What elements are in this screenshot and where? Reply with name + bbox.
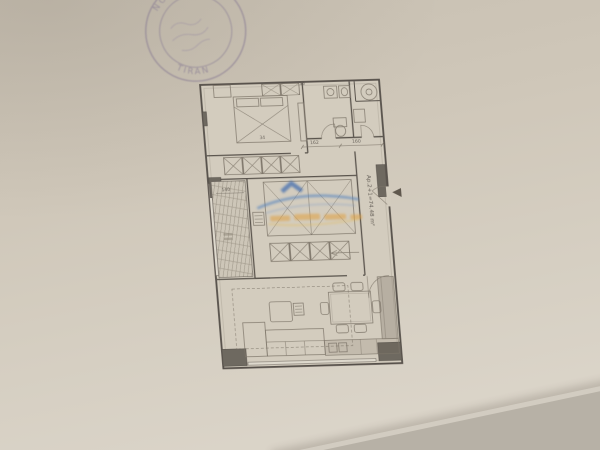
dim-top-wall: 38 bbox=[299, 81, 306, 87]
stamp-inner-ring bbox=[150, 0, 241, 77]
table-edge bbox=[271, 373, 600, 450]
column bbox=[222, 349, 247, 367]
entrance-arrow bbox=[392, 188, 402, 197]
dim-bed: 34 bbox=[259, 135, 265, 141]
dim-hall-right: 160 bbox=[352, 139, 361, 145]
column bbox=[202, 112, 207, 126]
dim-balcony: 140 bbox=[221, 187, 230, 194]
floor-plan: 38 34 162 160 140 Ap.2+1=74.48 m² bbox=[199, 78, 423, 373]
illegible-dimension-marks bbox=[224, 238, 233, 241]
floor-plan-drawing: 38 34 162 160 140 Ap.2+1=74.48 m² bbox=[199, 78, 423, 373]
illegible-dimension-marks bbox=[223, 233, 232, 236]
stamp-text-top: NOTER bbox=[147, 0, 194, 15]
stamp-illegible-text bbox=[168, 15, 213, 54]
dim-hall-left: 162 bbox=[310, 140, 319, 146]
photographed-floor-plan-page: NOTER TIRANË bbox=[0, 0, 600, 450]
